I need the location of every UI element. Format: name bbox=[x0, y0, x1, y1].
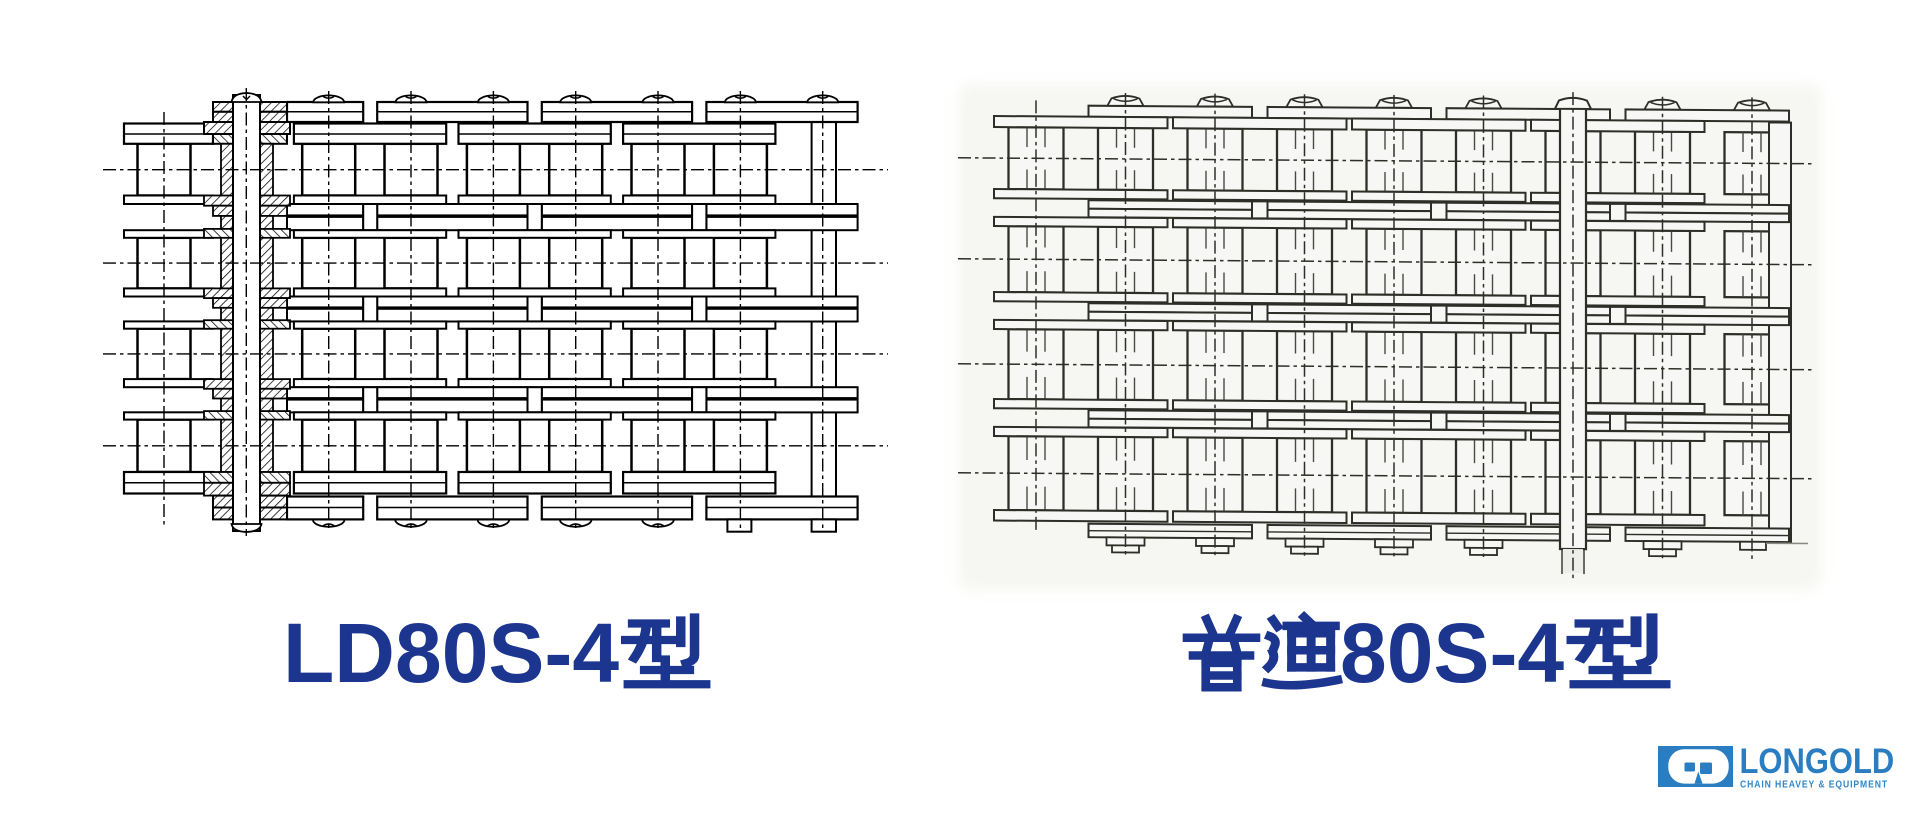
svg-text:80S-4: 80S-4 bbox=[1340, 606, 1564, 700]
svg-text:CHAIN HEAVEY & EQUIPMENT: CHAIN HEAVEY & EQUIPMENT bbox=[1740, 779, 1888, 791]
svg-text:LONGOLD: LONGOLD bbox=[1740, 742, 1895, 781]
svg-text:LD80S-4: LD80S-4 bbox=[283, 606, 619, 700]
